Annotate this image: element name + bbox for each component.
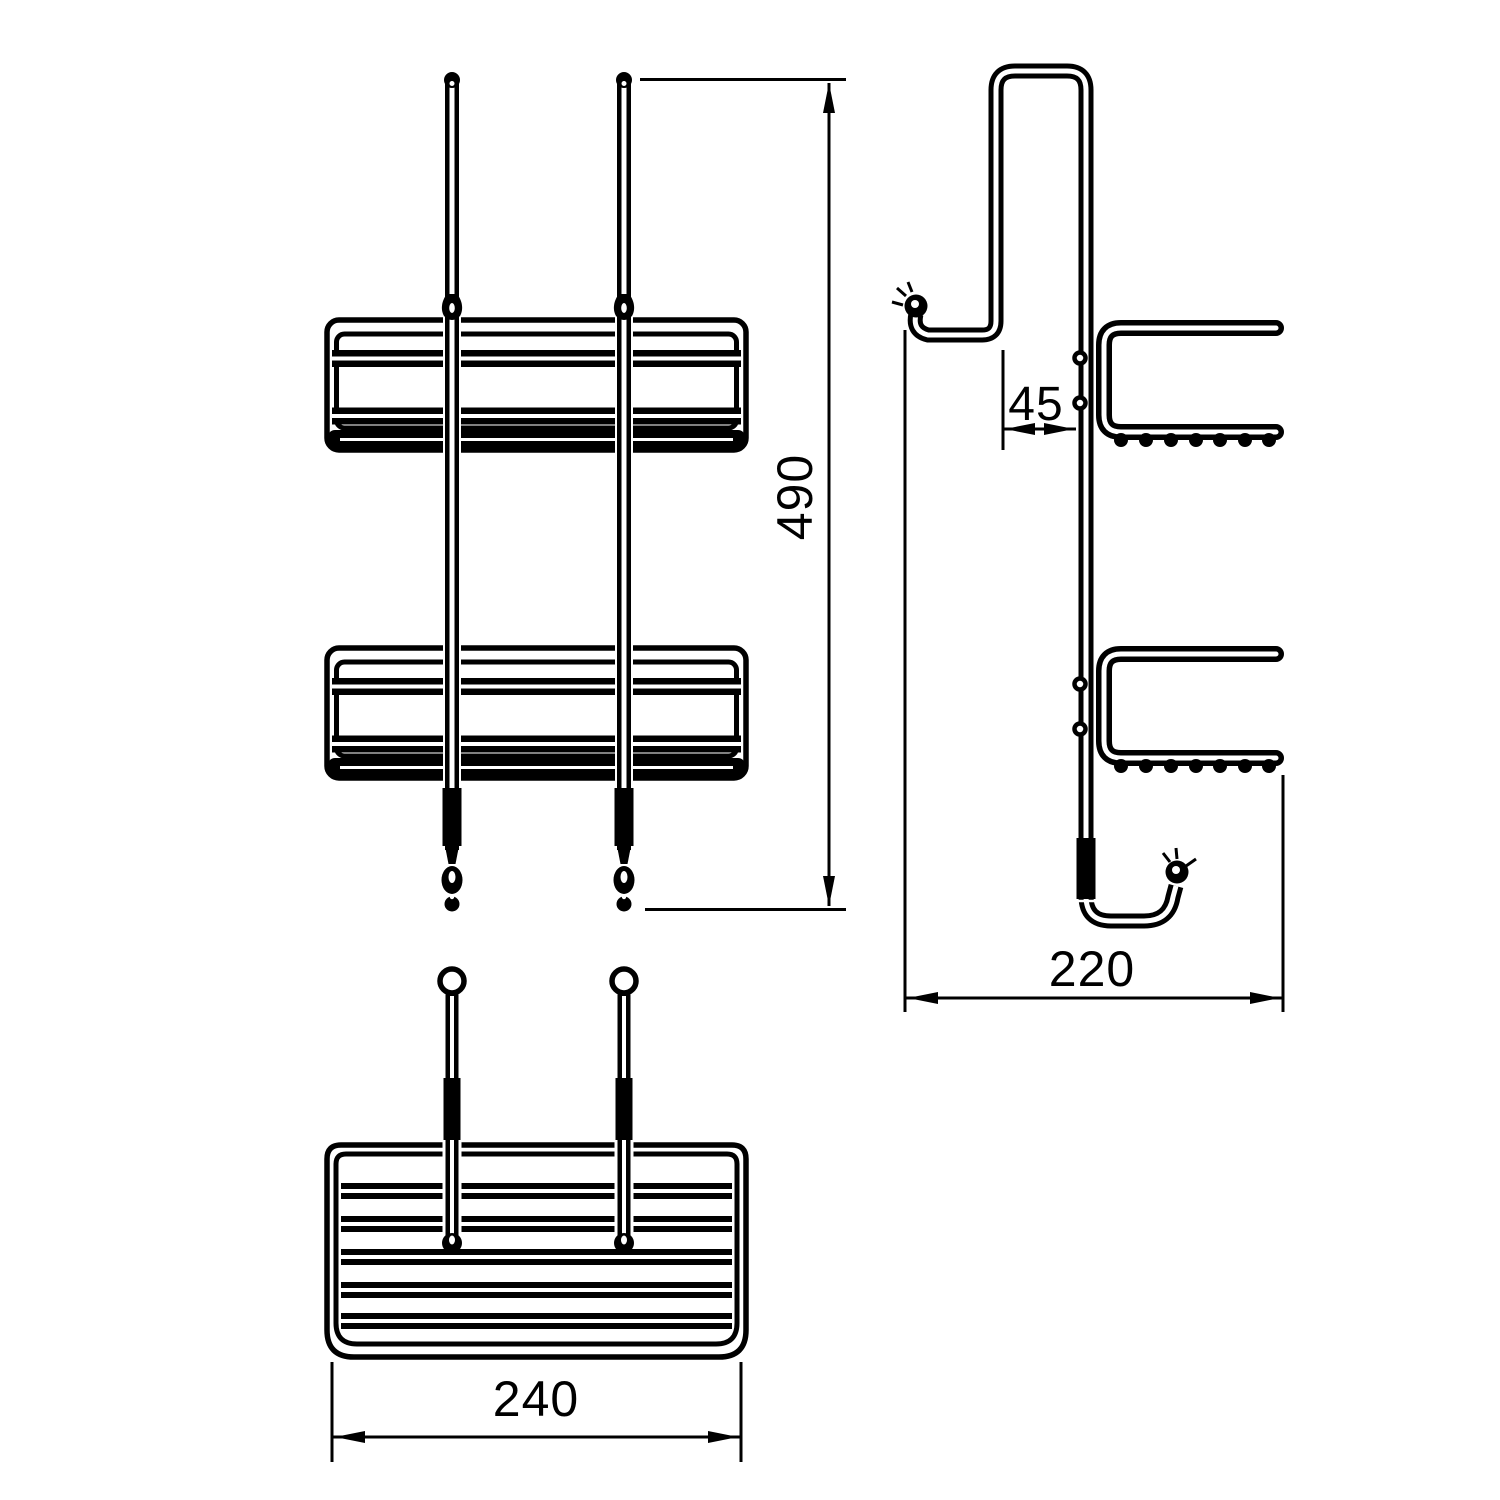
bottom-hook-ball-end: [1163, 848, 1196, 884]
side-hook-frame: [915, 71, 1176, 921]
hook-gap-dimension: 45: [1003, 350, 1076, 450]
height-dimension-label: 490: [767, 454, 823, 540]
side-basket-top: [1104, 328, 1276, 447]
height-dimension: 490: [640, 80, 846, 910]
side-view: [892, 71, 1276, 921]
technical-drawing-page: 490 45 220 240: [0, 0, 1500, 1500]
front-basket-top: [327, 320, 746, 450]
hanging-rod-right: [614, 72, 635, 912]
side-basket-bottom: [1104, 654, 1276, 773]
plan-rod-right: [612, 969, 636, 1253]
front-basket-bottom: [327, 648, 746, 778]
width-dimension-label: 240: [493, 1371, 579, 1427]
depth-dimension-label: 220: [1049, 941, 1135, 997]
plan-view: [327, 969, 746, 1357]
shower-caddy-drawing: 490 45 220 240: [0, 0, 1500, 1500]
hook-gap-dimension-label: 45: [1008, 378, 1063, 431]
plan-rod-left: [440, 969, 464, 1253]
width-dimension: 240: [332, 1362, 741, 1462]
front-view: [327, 72, 746, 912]
hanging-rod-left: [442, 72, 463, 912]
plan-basket-wires: [341, 1191, 732, 1321]
plan-basket: [327, 1145, 746, 1357]
front-hook-ball-end: [892, 282, 928, 318]
